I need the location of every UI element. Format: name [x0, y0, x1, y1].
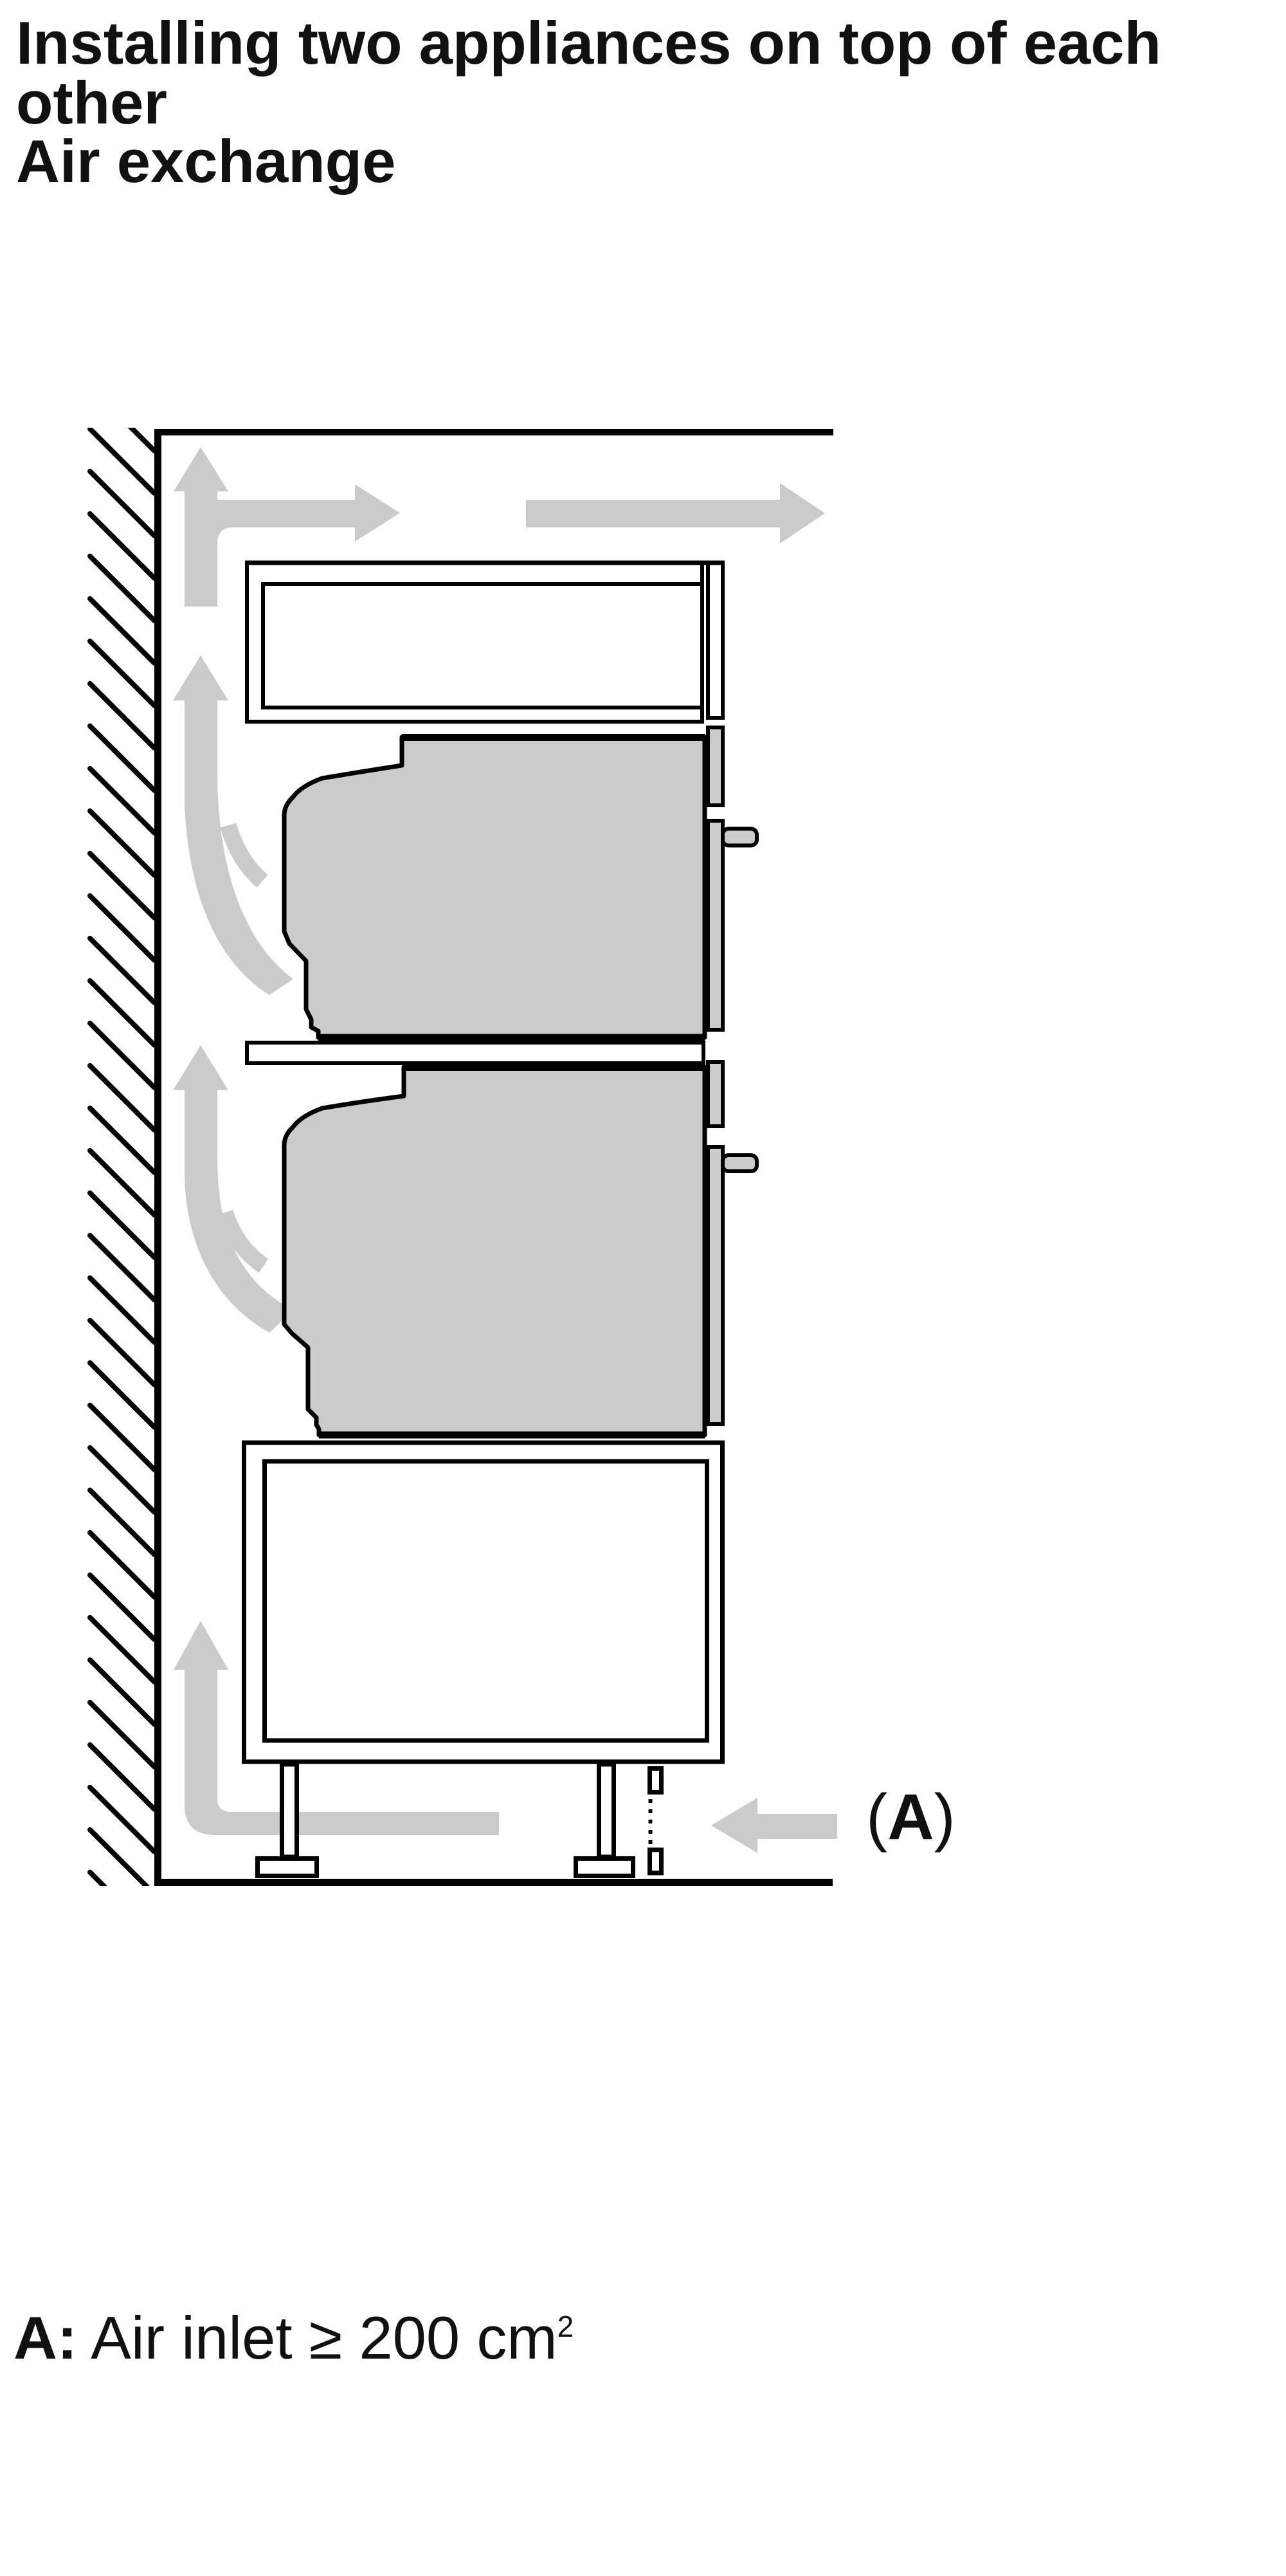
svg-text:(A): (A)	[866, 1781, 955, 1853]
svg-text:other: other	[16, 69, 167, 136]
svg-text:Air exchange: Air exchange	[16, 127, 395, 195]
svg-text:A: Air inlet ≥ 200 cm2: A: Air inlet ≥ 200 cm2	[14, 2304, 574, 2371]
svg-text:Installing two appliances on t: Installing two appliances on top of each	[16, 9, 1161, 77]
